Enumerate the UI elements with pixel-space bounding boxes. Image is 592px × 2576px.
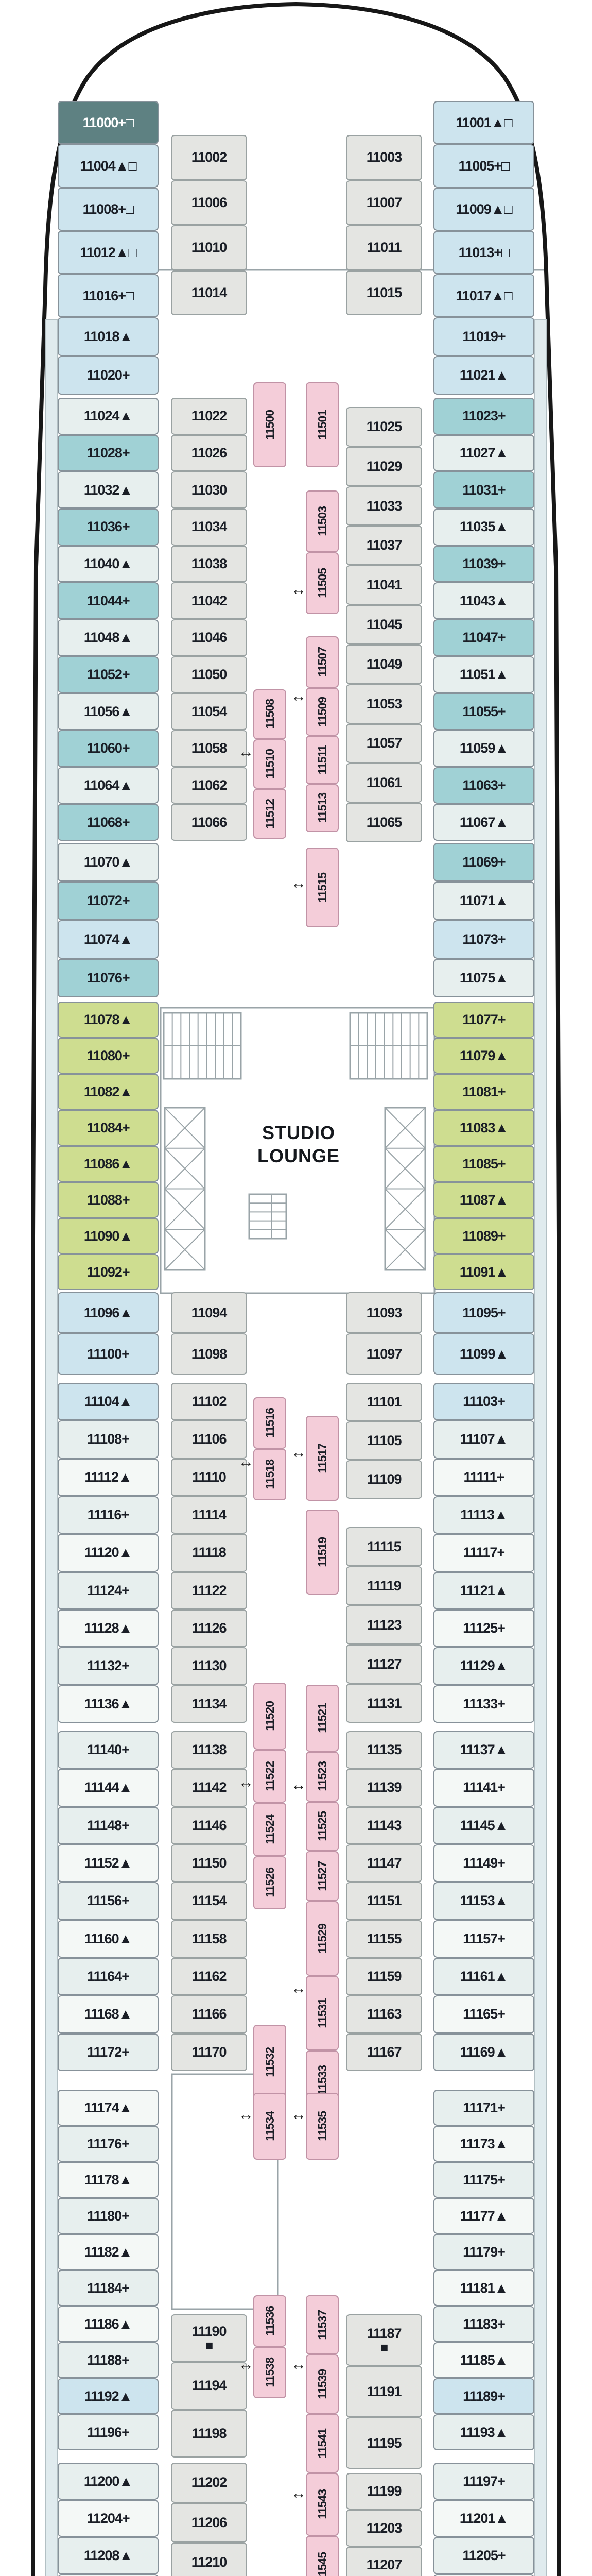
- cabin-11133[interactable]: 11133+: [433, 1685, 534, 1723]
- cabin-11077[interactable]: 11077+: [433, 1002, 534, 1038]
- cabin-11061[interactable]: 11061: [346, 763, 422, 803]
- cabin-11063[interactable]: 11063+: [433, 767, 534, 804]
- connecting-door-arrow-icon: ↔: [238, 1453, 254, 1471]
- cabin-11071[interactable]: 11071▲: [433, 882, 534, 920]
- cabin-11104[interactable]: 11104▲: [58, 1383, 159, 1420]
- cabin-11527[interactable]: 11527: [306, 1851, 339, 1901]
- cabin-11107[interactable]: 11107▲: [433, 1420, 534, 1458]
- cabin-11199[interactable]: 11199: [346, 2473, 422, 2510]
- cabin-11117[interactable]: 11117+: [433, 1534, 534, 1571]
- cabin-11058[interactable]: 11058: [171, 730, 247, 767]
- connecting-door-arrow-icon: ↔: [291, 581, 306, 599]
- cabin-11047[interactable]: 11047+: [433, 619, 534, 656]
- cabin-11143[interactable]: 11143: [346, 1807, 422, 1844]
- cabin-11014[interactable]: 11014: [171, 270, 247, 316]
- cabin-11501[interactable]: 11501: [306, 382, 339, 467]
- cabin-11158[interactable]: 11158: [171, 1920, 247, 1958]
- cabin-11100[interactable]: 11100+: [58, 1333, 159, 1375]
- cabin-11003[interactable]: 11003: [346, 135, 422, 180]
- cabin-11165[interactable]: 11165+: [433, 1995, 534, 2033]
- cabin-11195[interactable]: 11195: [346, 2417, 422, 2469]
- cabin-11191[interactable]: 11191: [346, 2366, 422, 2417]
- cabin-11159[interactable]: 11159: [346, 1958, 422, 1995]
- balcony-strip-left: [45, 319, 58, 2576]
- cabin-11505[interactable]: 11505: [306, 552, 339, 614]
- cabin-11140[interactable]: 11140+: [58, 1731, 159, 1769]
- cabin-11093[interactable]: 11093: [346, 1292, 422, 1333]
- cabin-11015[interactable]: 11015: [346, 270, 422, 316]
- cabin-11150[interactable]: 11150: [171, 1844, 247, 1882]
- cabin-11190[interactable]: 11190■: [171, 2314, 247, 2362]
- cabin-11154[interactable]: 11154: [171, 1882, 247, 1920]
- cabin-11538[interactable]: 11538: [253, 2347, 286, 2398]
- cabin-11040[interactable]: 11040▲: [58, 546, 159, 583]
- cabin-11163[interactable]: 11163: [346, 1995, 422, 2033]
- cabin-11512[interactable]: 11512: [253, 789, 286, 839]
- cabin-11145[interactable]: 11145▲: [433, 1807, 534, 1844]
- cabin-11525[interactable]: 11525: [306, 1802, 339, 1852]
- cabin-11146[interactable]: 11146: [171, 1807, 247, 1844]
- cabin-11025[interactable]: 11025: [346, 407, 422, 447]
- cabin-11065[interactable]: 11065: [346, 803, 422, 842]
- cabin-11094[interactable]: 11094: [171, 1292, 247, 1333]
- cabin-11098[interactable]: 11098: [171, 1333, 247, 1375]
- cabin-11141[interactable]: 11141+: [433, 1769, 534, 1806]
- connecting-door-arrow-icon: ↔: [291, 2485, 306, 2502]
- cabin-11011[interactable]: 11011: [346, 225, 422, 270]
- cabin-11507[interactable]: 11507: [306, 636, 339, 688]
- cabin-11147[interactable]: 11147: [346, 1844, 422, 1882]
- cabin-11056[interactable]: 11056▲: [58, 693, 159, 730]
- cabin-11072[interactable]: 11072+: [58, 882, 159, 920]
- cabin-11041[interactable]: 11041: [346, 565, 422, 605]
- cabin-11078[interactable]: 11078▲: [58, 1002, 159, 1038]
- cabin-11123[interactable]: 11123: [346, 1605, 422, 1645]
- cabin-11043[interactable]: 11043▲: [433, 582, 534, 619]
- cabin-11023[interactable]: 11023+: [433, 398, 534, 435]
- cabin-11075[interactable]: 11075▲: [433, 959, 534, 997]
- cabin-11021[interactable]: 11021▲: [433, 356, 534, 395]
- cabin-11031[interactable]: 11031+: [433, 471, 534, 509]
- cabin-11509[interactable]: 11509: [306, 688, 339, 736]
- cabin-11066[interactable]: 11066: [171, 804, 247, 841]
- cabin-11134[interactable]: 11134: [171, 1685, 247, 1723]
- cabin-11124[interactable]: 11124+: [58, 1572, 159, 1609]
- cabin-11541[interactable]: 11541: [306, 2414, 339, 2473]
- cabin-11168[interactable]: 11168▲: [58, 1995, 159, 2033]
- cabin-11016[interactable]: 11016+□: [58, 274, 159, 317]
- cabin-11536[interactable]: 11536: [253, 2295, 286, 2347]
- cabin-11203[interactable]: 11203: [346, 2510, 422, 2546]
- cabin-11118[interactable]: 11118: [171, 1534, 247, 1571]
- cabin-11182[interactable]: 11182▲: [58, 2234, 159, 2270]
- cabin-11083[interactable]: 11083▲: [433, 1110, 534, 1146]
- cabin-11091[interactable]: 11091▲: [433, 1254, 534, 1290]
- cabin-11068[interactable]: 11068+: [58, 804, 159, 841]
- cabin-11160[interactable]: 11160▲: [58, 1920, 159, 1958]
- cabin-11192[interactable]: 11192▲: [58, 2378, 159, 2414]
- cabin-11129[interactable]: 11129▲: [433, 1647, 534, 1685]
- cabin-11009[interactable]: 11009▲□: [433, 188, 534, 231]
- cabin-11019[interactable]: 11019+: [433, 317, 534, 356]
- cabin-11012[interactable]: 11012▲□: [58, 231, 159, 274]
- cabin-11079[interactable]: 11079▲: [433, 1038, 534, 1074]
- cabin-11137[interactable]: 11137▲: [433, 1731, 534, 1769]
- cabin-11070[interactable]: 11070▲: [58, 843, 159, 882]
- cabin-11048[interactable]: 11048▲: [58, 619, 159, 656]
- cabin-11005[interactable]: 11005+□: [433, 144, 534, 188]
- cabin-11539[interactable]: 11539: [306, 2354, 339, 2414]
- cabin-11148[interactable]: 11148+: [58, 1807, 159, 1844]
- cabin-11024[interactable]: 11024▲: [58, 398, 159, 435]
- cabin-11050[interactable]: 11050: [171, 656, 247, 693]
- cabin-11198[interactable]: 11198: [171, 2410, 247, 2458]
- cabin-11142[interactable]: 11142: [171, 1769, 247, 1806]
- balcony-strip-right: [534, 319, 547, 2576]
- cabin-11524[interactable]: 11524: [253, 1803, 286, 1856]
- cabin-11545[interactable]: 11545: [306, 2536, 339, 2576]
- cabin-11122[interactable]: 11122: [171, 1572, 247, 1609]
- cabin-11178[interactable]: 11178▲: [58, 2162, 159, 2198]
- cabin-11138[interactable]: 11138: [171, 1731, 247, 1769]
- connecting-door-arrow-icon: ↔: [238, 743, 254, 761]
- cabin-11130[interactable]: 11130: [171, 1647, 247, 1685]
- cabin-11183[interactable]: 11183+: [433, 2306, 534, 2342]
- cabin-11135[interactable]: 11135: [346, 1731, 422, 1769]
- cabin-11029[interactable]: 11029: [346, 447, 422, 486]
- cabin-11114[interactable]: 11114: [171, 1496, 247, 1534]
- cabin-11111[interactable]: 11111+: [433, 1459, 534, 1496]
- cabin-11106[interactable]: 11106: [171, 1420, 247, 1458]
- cabin-11028[interactable]: 11028+: [58, 435, 159, 472]
- cabin-11119[interactable]: 11119: [346, 1566, 422, 1605]
- cabin-11112[interactable]: 11112▲: [58, 1459, 159, 1496]
- cabin-11067[interactable]: 11067▲: [433, 804, 534, 841]
- cabin-11054[interactable]: 11054: [171, 693, 247, 730]
- cabin-11208[interactable]: 11208▲: [58, 2537, 159, 2574]
- cabin-11156[interactable]: 11156+: [58, 1882, 159, 1920]
- cabin-11036[interactable]: 11036+: [58, 509, 159, 546]
- cabin-11059[interactable]: 11059▲: [433, 730, 534, 767]
- cabin-11099[interactable]: 11099▲: [433, 1333, 534, 1375]
- cabin-11205[interactable]: 11205+: [433, 2537, 534, 2574]
- connecting-door-arrow-icon: ↔: [238, 2356, 254, 2374]
- cabin-11510[interactable]: 11510: [253, 739, 286, 789]
- cabin-11121[interactable]: 11121▲: [433, 1572, 534, 1609]
- cabin-11131[interactable]: 11131: [346, 1684, 422, 1723]
- cabin-11038[interactable]: 11038: [171, 546, 247, 583]
- cabin-11044[interactable]: 11044+: [58, 582, 159, 619]
- cabin-11095[interactable]: 11095+: [433, 1292, 534, 1333]
- cabin-11073[interactable]: 11073+: [433, 920, 534, 959]
- cabin-11060[interactable]: 11060+: [58, 730, 159, 767]
- cabin-11166[interactable]: 11166: [171, 1995, 247, 2033]
- connecting-door-arrow-icon: ↔: [291, 875, 306, 892]
- cabin-11537[interactable]: 11537: [306, 2295, 339, 2354]
- cabin-11006[interactable]: 11006: [171, 180, 247, 226]
- cabin-11186[interactable]: 11186▲: [58, 2306, 159, 2342]
- cabin-11089[interactable]: 11089+: [433, 1218, 534, 1254]
- connecting-door-arrow-icon: ↔: [291, 2106, 306, 2124]
- cabin-11055[interactable]: 11055+: [433, 693, 534, 730]
- connecting-door-arrow-icon: ↔: [291, 1444, 306, 1462]
- cabin-11127[interactable]: 11127: [346, 1645, 422, 1684]
- cabin-11002[interactable]: 11002: [171, 135, 247, 180]
- cabin-11132[interactable]: 11132+: [58, 1647, 159, 1685]
- cabin-11177[interactable]: 11177▲: [433, 2198, 534, 2234]
- connecting-door-arrow-icon: ↔: [291, 688, 306, 705]
- cabin-11076[interactable]: 11076+: [58, 959, 159, 997]
- cabin-11069[interactable]: 11069+: [433, 843, 534, 882]
- cabin-11151[interactable]: 11151: [346, 1882, 422, 1920]
- cabin-11136[interactable]: 11136▲: [58, 1685, 159, 1723]
- cabin-11526[interactable]: 11526: [253, 1856, 286, 1909]
- cabin-11004[interactable]: 11004▲□: [58, 144, 159, 188]
- cabin-11513[interactable]: 11513: [306, 784, 339, 832]
- cabin-11087[interactable]: 11087▲: [433, 1182, 534, 1218]
- cabin-11519[interactable]: 11519: [306, 1510, 339, 1595]
- cabin-11046[interactable]: 11046: [171, 619, 247, 656]
- cabin-11125[interactable]: 11125+: [433, 1609, 534, 1647]
- cabin-11153[interactable]: 11153▲: [433, 1882, 534, 1920]
- cabin-11188[interactable]: 11188+: [58, 2342, 159, 2378]
- cabin-11033[interactable]: 11033: [346, 486, 422, 526]
- cabin-11531[interactable]: 11531: [306, 1976, 339, 2050]
- cabin-11052[interactable]: 11052+: [58, 656, 159, 693]
- connecting-door-arrow-icon: ↔: [238, 2106, 254, 2124]
- cabin-11157[interactable]: 11157+: [433, 1920, 534, 1958]
- cabin-11543[interactable]: 11543: [306, 2473, 339, 2536]
- cabin-11022[interactable]: 11022: [171, 398, 247, 435]
- cabin-11180[interactable]: 11180+: [58, 2198, 159, 2234]
- cabin-11045[interactable]: 11045: [346, 605, 422, 645]
- studio-lounge-label: STUDIO LOUNGE: [241, 1121, 356, 1167]
- cabin-11202[interactable]: 11202: [171, 2463, 247, 2503]
- cabin-11013[interactable]: 11013+□: [433, 231, 534, 274]
- cabin-11110[interactable]: 11110: [171, 1459, 247, 1496]
- cabin-11175[interactable]: 11175+: [433, 2162, 534, 2198]
- cabin-11517[interactable]: 11517: [306, 1416, 339, 1501]
- cabin-11515[interactable]: 11515: [306, 848, 339, 927]
- cabin-11206[interactable]: 11206: [171, 2503, 247, 2543]
- cabin-11201[interactable]: 11201▲: [433, 2500, 534, 2537]
- cabin-11174[interactable]: 11174▲: [58, 2090, 159, 2126]
- cabin-11172[interactable]: 11172+: [58, 2033, 159, 2071]
- cabin-11167[interactable]: 11167: [346, 2033, 422, 2071]
- cabin-11057[interactable]: 11057: [346, 724, 422, 764]
- cabin-11508[interactable]: 11508: [253, 689, 286, 739]
- cabin-11039[interactable]: 11039+: [433, 546, 534, 583]
- cabin-11007[interactable]: 11007: [346, 180, 422, 226]
- cabin-11187[interactable]: 11187■: [346, 2314, 422, 2366]
- cabin-11027[interactable]: 11027▲: [433, 435, 534, 472]
- cabin-11179[interactable]: 11179+: [433, 2234, 534, 2270]
- cabin-11037[interactable]: 11037: [346, 526, 422, 565]
- cabin-11035[interactable]: 11035▲: [433, 509, 534, 546]
- cabin-11516[interactable]: 11516: [253, 1397, 286, 1449]
- cabin-11049[interactable]: 11049: [346, 645, 422, 684]
- cabin-11085[interactable]: 11085+: [433, 1146, 534, 1182]
- cabin-11500[interactable]: 11500: [253, 382, 286, 467]
- cabin-11051[interactable]: 11051▲: [433, 656, 534, 693]
- cabin-11523[interactable]: 11523: [306, 1752, 339, 1802]
- connecting-door-arrow-icon: ↔: [291, 2356, 306, 2374]
- cabin-11170[interactable]: 11170: [171, 2033, 247, 2071]
- cabin-11101[interactable]: 11101: [346, 1383, 422, 1421]
- cabin-11522[interactable]: 11522: [253, 1750, 286, 1803]
- cabin-11181[interactable]: 11181▲: [433, 2270, 534, 2306]
- cabin-11026[interactable]: 11026: [171, 435, 247, 472]
- cabin-11053[interactable]: 11053: [346, 684, 422, 724]
- cabin-11088[interactable]: 11088+: [58, 1182, 159, 1218]
- cabin-11169[interactable]: 11169▲: [433, 2033, 534, 2071]
- cabin-11120[interactable]: 11120▲: [58, 1534, 159, 1571]
- cabin-11197[interactable]: 11197+: [433, 2463, 534, 2500]
- cabin-11194[interactable]: 11194: [171, 2362, 247, 2410]
- cabin-11128[interactable]: 11128▲: [58, 1609, 159, 1647]
- connecting-door-arrow-icon: ↔: [291, 1776, 306, 1794]
- cabin-11185[interactable]: 11185▲: [433, 2342, 534, 2378]
- cabin-11032[interactable]: 11032▲: [58, 471, 159, 509]
- cabin-11144[interactable]: 11144▲: [58, 1769, 159, 1806]
- cabin-11210[interactable]: 11210: [171, 2543, 247, 2576]
- cabin-11161[interactable]: 11161▲: [433, 1958, 534, 1995]
- cabin-11030[interactable]: 11030: [171, 471, 247, 509]
- cabin-11532[interactable]: 11532: [253, 2025, 286, 2099]
- cabin-11080[interactable]: 11080+: [58, 1038, 159, 1074]
- cabin-11018[interactable]: 11018▲: [58, 317, 159, 356]
- cabin-11008[interactable]: 11008+□: [58, 188, 159, 231]
- cabin-11074[interactable]: 11074▲: [58, 920, 159, 959]
- cabin-11176[interactable]: 11176+: [58, 2126, 159, 2162]
- cabin-11115[interactable]: 11115: [346, 1527, 422, 1566]
- cabin-11116[interactable]: 11116+: [58, 1496, 159, 1534]
- cabin-11113[interactable]: 11113▲: [433, 1496, 534, 1534]
- cabin-11084[interactable]: 11084+: [58, 1110, 159, 1146]
- cabin-11139[interactable]: 11139: [346, 1769, 422, 1806]
- cabin-11082[interactable]: 11082▲: [58, 1074, 159, 1110]
- cabin-11126[interactable]: 11126: [171, 1609, 247, 1647]
- cabin-11108[interactable]: 11108+: [58, 1420, 159, 1458]
- cabin-11521[interactable]: 11521: [306, 1685, 339, 1752]
- cabin-11518[interactable]: 11518: [253, 1449, 286, 1500]
- cabin-11184[interactable]: 11184+: [58, 2270, 159, 2306]
- cabin-11189[interactable]: 11189+: [433, 2378, 534, 2414]
- cabin-11062[interactable]: 11062: [171, 767, 247, 804]
- cabin-11152[interactable]: 11152▲: [58, 1844, 159, 1882]
- cabin-11086[interactable]: 11086▲: [58, 1146, 159, 1182]
- cabin-11164[interactable]: 11164+: [58, 1958, 159, 1995]
- cabin-11010[interactable]: 11010: [171, 225, 247, 270]
- cabin-11534[interactable]: 11534: [253, 2093, 286, 2160]
- cabin-11212[interactable]: 11212+: [58, 2574, 159, 2576]
- cabin-11149[interactable]: 11149+: [433, 1844, 534, 1882]
- cabin-11155[interactable]: 11155: [346, 1920, 422, 1958]
- cabin-11097[interactable]: 11097: [346, 1333, 422, 1375]
- cabin-11529[interactable]: 11529: [306, 1901, 339, 1976]
- cabin-11173[interactable]: 11173▲: [433, 2126, 534, 2162]
- cabin-11090[interactable]: 11090▲: [58, 1218, 159, 1254]
- cabin-11020[interactable]: 11020+: [58, 356, 159, 395]
- cabin-11207[interactable]: 11207: [346, 2547, 422, 2576]
- cabin-11017[interactable]: 11017▲□: [433, 274, 534, 317]
- cabin-11000[interactable]: 11000+□: [58, 101, 159, 144]
- cabin-11200[interactable]: 11200▲: [58, 2463, 159, 2500]
- cabin-11520[interactable]: 11520: [253, 1683, 286, 1750]
- cabin-11511[interactable]: 11511: [306, 736, 339, 784]
- cabin-11064[interactable]: 11064▲: [58, 767, 159, 804]
- cabin-11081[interactable]: 11081+: [433, 1074, 534, 1110]
- connecting-door-arrow-icon: ↔: [238, 1774, 254, 1791]
- cabin-11109[interactable]: 11109: [346, 1460, 422, 1499]
- cabin-11102[interactable]: 11102: [171, 1383, 247, 1420]
- cabin-11204[interactable]: 11204+: [58, 2500, 159, 2537]
- cabin-11103[interactable]: 11103+: [433, 1383, 534, 1420]
- cabin-11209[interactable]: 11209▲: [433, 2574, 534, 2576]
- cabin-11042[interactable]: 11042: [171, 582, 247, 619]
- cabin-11196[interactable]: 11196+: [58, 2414, 159, 2450]
- cabin-11034[interactable]: 11034: [171, 509, 247, 546]
- cabin-11193[interactable]: 11193▲: [433, 2414, 534, 2450]
- cabin-11096[interactable]: 11096▲: [58, 1292, 159, 1333]
- connecting-door-arrow-icon: ↔: [291, 1980, 306, 1997]
- cabin-11001[interactable]: 11001▲□: [433, 101, 534, 144]
- cabin-11162[interactable]: 11162: [171, 1958, 247, 1995]
- cabin-11535[interactable]: 11535: [306, 2093, 339, 2160]
- cabin-11105[interactable]: 11105: [346, 1421, 422, 1460]
- cabin-11171[interactable]: 11171+: [433, 2090, 534, 2126]
- cabin-11503[interactable]: 11503: [306, 490, 339, 552]
- cabin-11092[interactable]: 11092+: [58, 1254, 159, 1290]
